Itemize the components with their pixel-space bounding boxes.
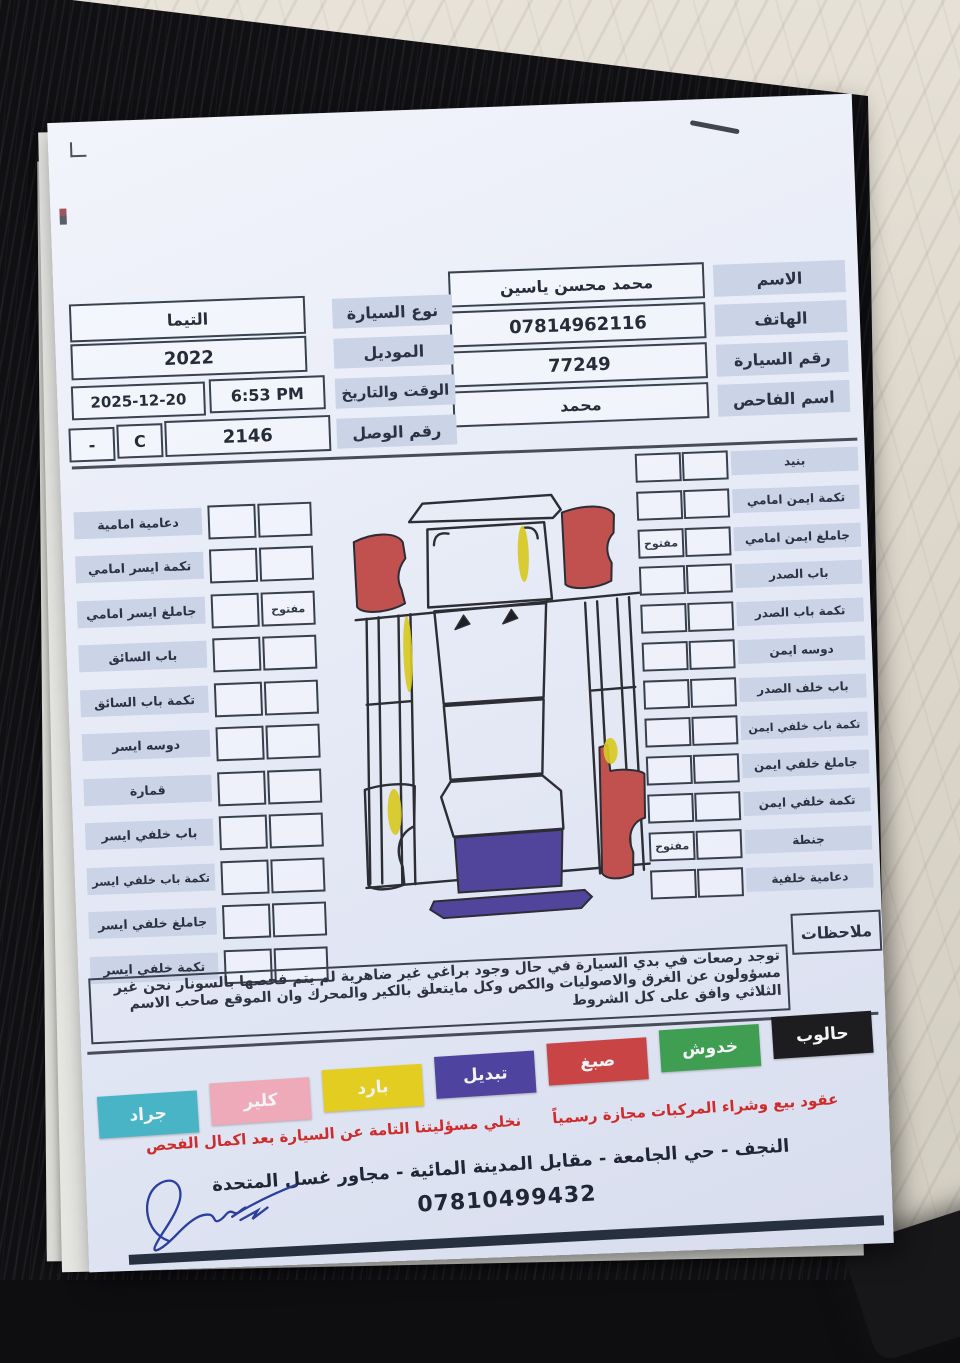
checkbox [682, 450, 729, 481]
checklist-row-left: باب خلفي ايسر [85, 812, 326, 852]
checkbox [646, 755, 693, 786]
checklist-item-label: دوسه ايسر [82, 730, 211, 762]
time-value: 6:53 PM [209, 375, 326, 413]
checklist-row-right: دعامية خلفية [650, 862, 875, 897]
checklist-item-label: دعامية خلفية [746, 863, 874, 892]
checkbox [267, 769, 322, 805]
checklist-row-right: مفتوحجنطة [649, 824, 874, 859]
checklist-row-right: جاملغ خلفي ايمن [646, 748, 871, 783]
checkbox [211, 593, 260, 629]
legend-box-grad: جراد [97, 1090, 200, 1138]
open-status-checkbox: مفتوح [649, 831, 696, 862]
checklist-item-label: جاملغ خلفي ايمن [742, 749, 870, 778]
inspector-label: اسم الفاحص [717, 380, 850, 417]
checklist-row-right: باب الصدر [639, 559, 864, 594]
checklist-item-label: باب خلف الصدر [739, 674, 867, 703]
checklist-row-left: قمارة [83, 768, 324, 808]
checklist-row-right: تكمة خلفي ايمن [647, 786, 872, 821]
checkbox [693, 753, 740, 784]
checkbox [269, 813, 324, 849]
checkbox [214, 682, 263, 718]
checkbox [264, 680, 319, 716]
checkbox [686, 563, 733, 594]
checklist-item-label: تكمة ايمن امامي [732, 485, 860, 514]
legend-box-scratch: خدوش [659, 1024, 762, 1072]
checklist-item-label: قمارة [83, 775, 212, 807]
car-number-label: رقم السيارة [716, 340, 849, 377]
car-number-value: 77249 [451, 342, 708, 387]
checklist-item-label: تكمة ايسر امامي [75, 552, 204, 584]
checkbox [687, 601, 734, 632]
checkbox [219, 815, 268, 851]
checkbox [220, 860, 269, 896]
checkbox [257, 502, 312, 538]
car-type-label: نوع السيارة [332, 294, 453, 328]
checkbox [217, 771, 266, 807]
checklist-item-label: تكمة باب الصدر [736, 598, 864, 627]
receipt-number-value: 2146 [164, 415, 331, 457]
checklist-row-right: بنيد [635, 446, 860, 481]
checklist-item-label: باب السائق [78, 641, 207, 673]
checklist-item-label: جنطة [745, 825, 873, 854]
checkbox [683, 488, 730, 519]
checklist-item-label: بنيد [731, 447, 859, 476]
receipt-code-box: C [116, 423, 163, 459]
checkbox [215, 726, 264, 762]
checkbox [690, 677, 737, 708]
checkbox [696, 829, 743, 860]
phone-label: الهاتف [714, 300, 847, 337]
checkbox [689, 639, 736, 670]
notes-label: ملاحظات [790, 910, 882, 955]
edge-print-mark [59, 208, 67, 224]
date-value: 2025-12-20 [71, 382, 206, 421]
checklist-row-right: تكمة ايمن امامي [636, 484, 861, 519]
checklist-item-label: باب الصدر [735, 560, 863, 589]
checkbox [650, 869, 697, 900]
checklist-item-label: دعامية امامية [73, 508, 202, 540]
checklist-row-left: باب السائق [78, 635, 319, 675]
legend-box-halob: حالوب [771, 1011, 874, 1059]
checkbox [639, 565, 686, 596]
checkbox [265, 724, 320, 760]
legend-box-paint: صبغ [546, 1037, 649, 1085]
checklist-row-right: دوسه ايمن [642, 634, 867, 669]
receipt-label: رقم الوصل [336, 414, 457, 448]
checklist-item-label: تكمة خلفي ايمن [743, 787, 871, 816]
checkbox [259, 546, 314, 582]
checklist-item-label: تكمة باب السائق [80, 686, 209, 718]
checkbox [694, 791, 741, 822]
checkbox [270, 857, 325, 893]
checklist-row-left: تكمة باب السائق [80, 680, 321, 720]
legend-box-replace: تبديل [434, 1051, 537, 1099]
checklist-item-label: دوسه ايمن [738, 636, 866, 665]
open-status-checkbox: مفتوح [637, 528, 684, 559]
checklist-row-right: تكمة باب الصدر [640, 597, 865, 632]
checkbox [272, 901, 327, 937]
checkbox [207, 504, 256, 540]
phone-value: 07814962116 [449, 302, 706, 347]
checkbox [209, 548, 258, 584]
checklist-row-left: جاملغ خلفي ايسر [88, 901, 329, 941]
crop-corner-mark [70, 142, 87, 158]
checkbox [642, 641, 689, 672]
inspector-value: محمد [452, 382, 709, 427]
checklist-item-label: جاملغ ايسر امامي [77, 597, 206, 629]
checkbox [647, 793, 694, 824]
receipt-dash-box: - [68, 427, 115, 463]
car-damage-diagram [346, 488, 656, 926]
open-status-checkbox: مفتوح [261, 591, 316, 627]
inspection-form-paper: الاسم محمد محسن ياسين الهاتف 07814962116… [47, 94, 894, 1273]
checkbox [222, 903, 271, 939]
checklist-row-left: تكمة باب خلفي ايسر [86, 857, 327, 897]
checklist-row-right: تكمة باب خلفي ايمن [644, 710, 869, 745]
name-value: محمد محسن ياسين [448, 262, 705, 307]
checkbox [644, 717, 691, 748]
car-type-value: التيما [69, 296, 306, 343]
checkbox [643, 679, 690, 710]
name-label: الاسم [713, 260, 846, 297]
checkbox [212, 637, 261, 673]
checklist-item-label: جاملغ خلفي ايسر [88, 907, 217, 939]
legend-box-clear: كلير [209, 1077, 312, 1125]
checklist-item-label: تكمة باب خلفي ايمن [740, 711, 868, 740]
checkbox [697, 867, 744, 898]
checkbox [691, 715, 738, 746]
checklist-row-left: جاملغ ايسر اماميمفتوح [77, 591, 318, 631]
checkbox [640, 603, 687, 634]
checklist-item-label: جاملغ ايمن امامي [733, 523, 861, 552]
checkbox [684, 526, 731, 557]
checklist-row-left: دعامية امامية [73, 502, 314, 542]
checkbox [635, 452, 682, 483]
datetime-label: الوقت والتاريخ [335, 374, 456, 408]
checklist-row-left: دوسه ايسر [82, 723, 323, 763]
checkbox [636, 490, 683, 521]
checklist-item-label: باب خلفي ايسر [85, 819, 214, 851]
checklist-row-left: تكمة ايسر امامي [75, 546, 316, 586]
model-value: 2022 [70, 336, 307, 381]
checklist-item-label: تكمة باب خلفي ايسر [87, 864, 216, 896]
pen-dash-mark [690, 120, 740, 134]
legend-box-cold: بارد [322, 1064, 425, 1112]
model-label: الموديل [333, 334, 454, 368]
checklist-row-right: باب خلف الصدر [643, 672, 868, 707]
checkbox [262, 635, 317, 671]
checklist-row-right: مفتوحجاملغ ايمن امامي [637, 522, 862, 557]
